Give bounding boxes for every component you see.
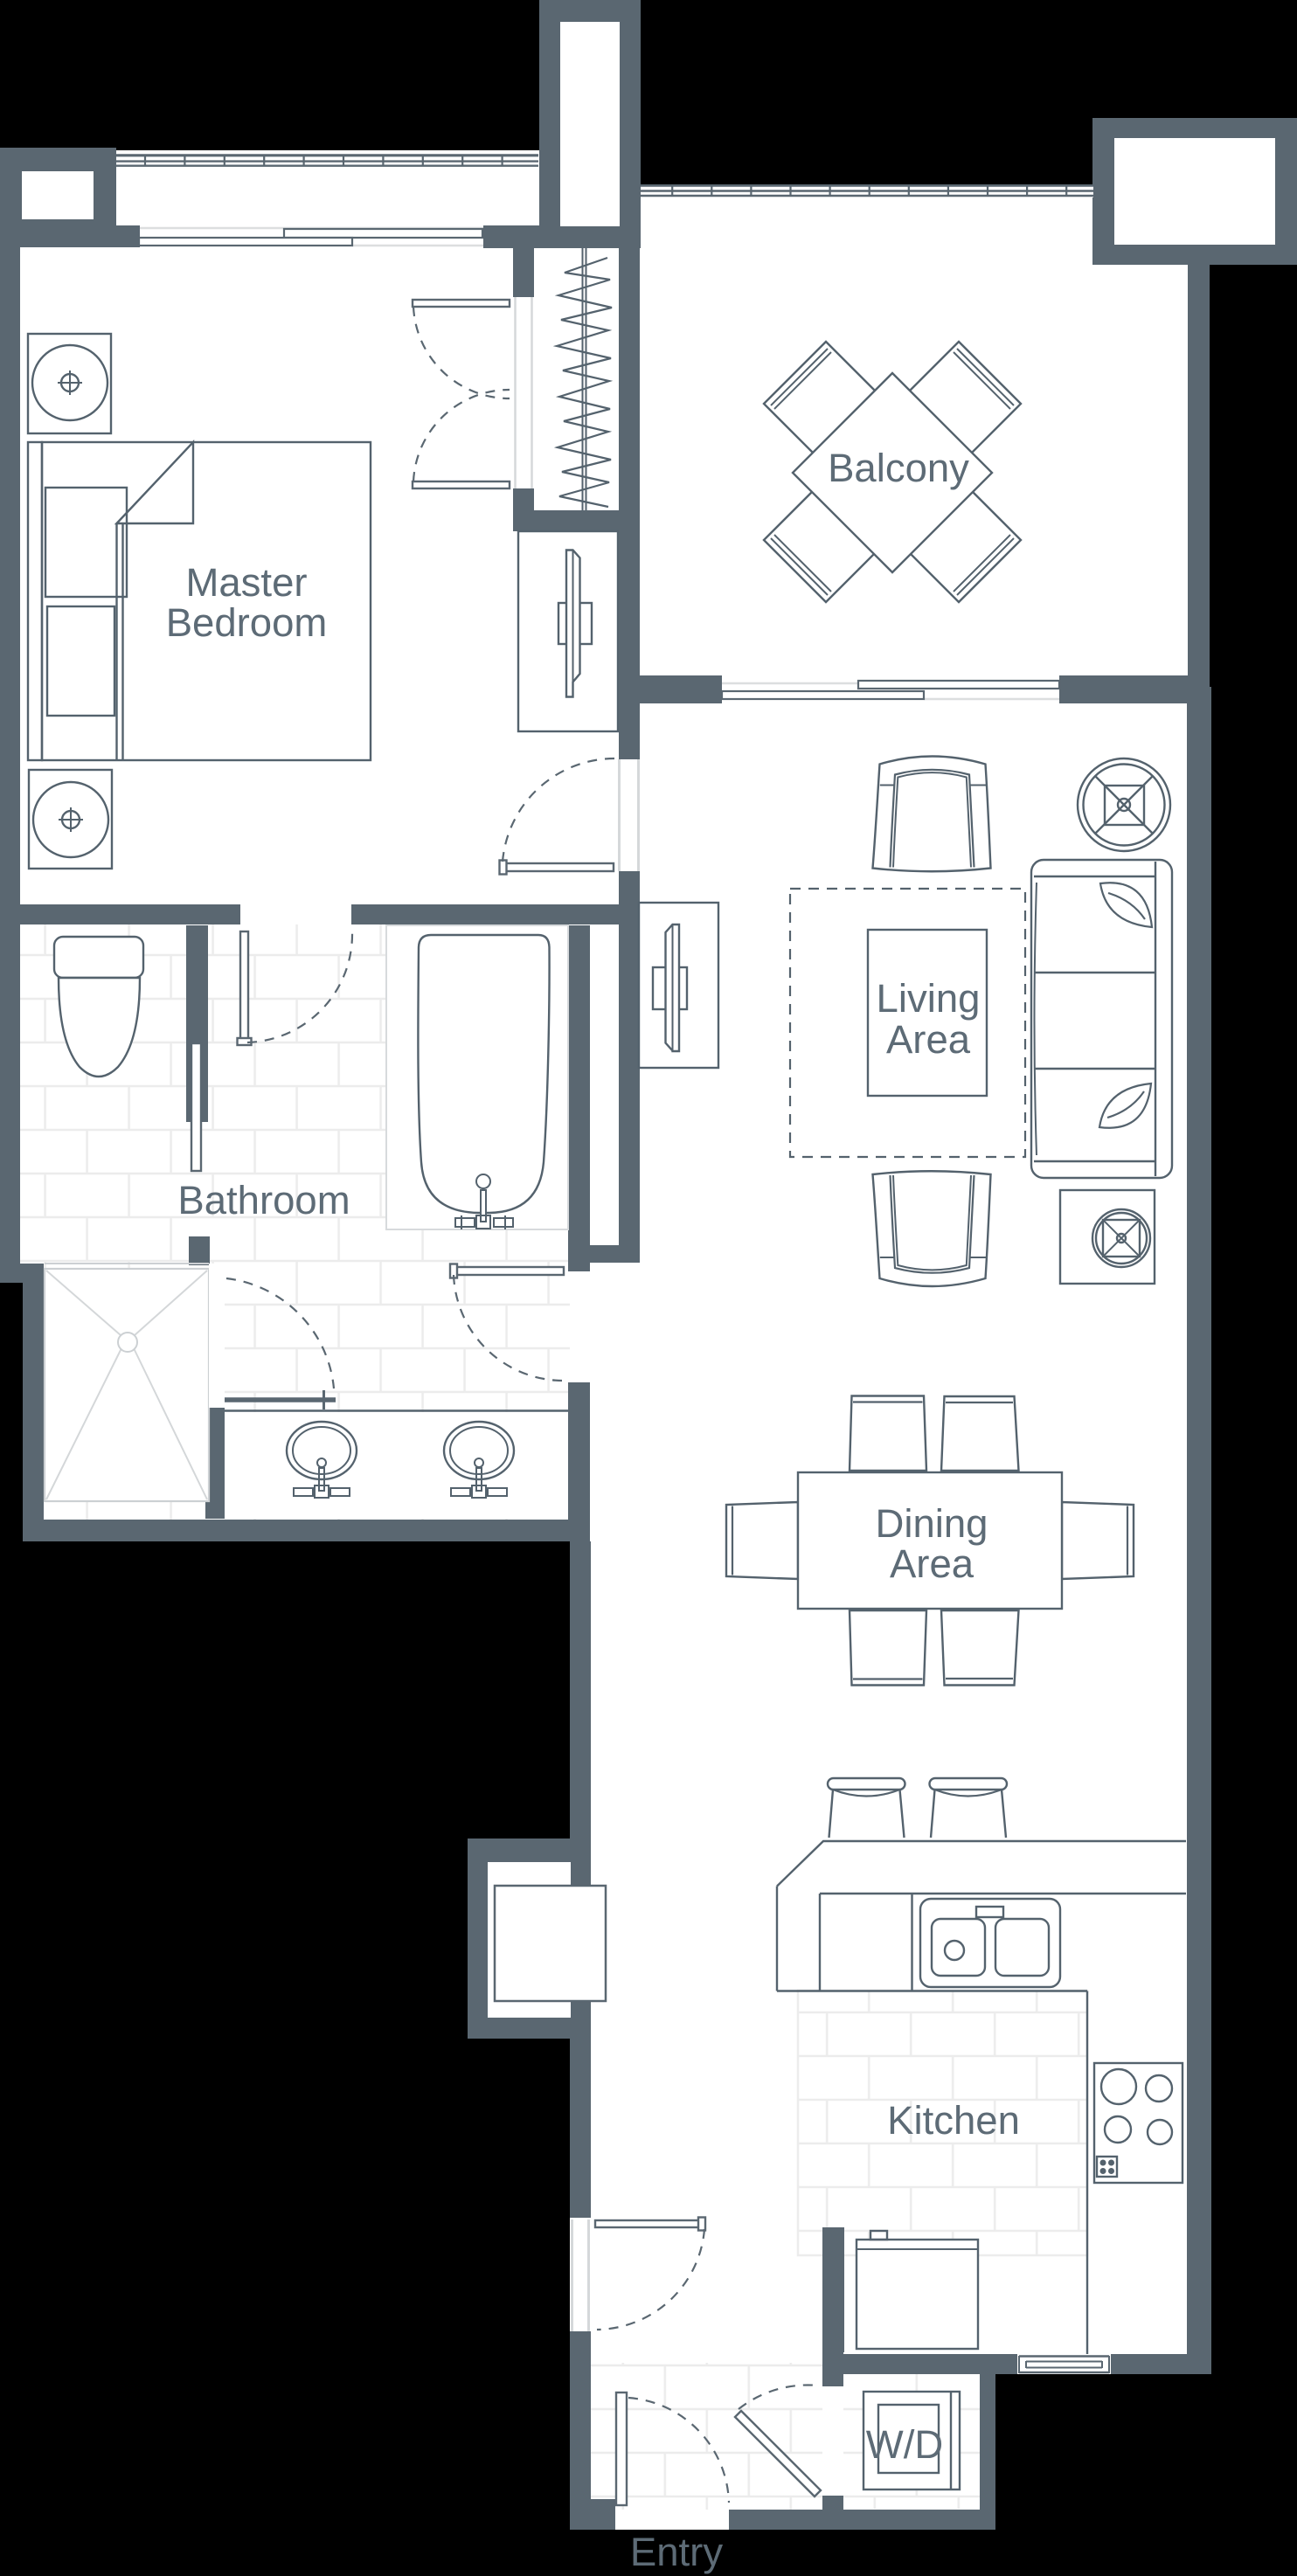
svg-text:Bathroom: Bathroom bbox=[177, 1178, 350, 1222]
svg-text:W/D: W/D bbox=[866, 2422, 943, 2467]
svg-text:Kitchen: Kitchen bbox=[887, 2098, 1020, 2143]
svg-text:Dining: Dining bbox=[876, 1501, 988, 1546]
svg-text:Balcony: Balcony bbox=[828, 446, 969, 490]
svg-text:Area: Area bbox=[886, 1017, 971, 1062]
svg-text:Area: Area bbox=[890, 1541, 974, 1586]
svg-text:Entry: Entry bbox=[630, 2530, 723, 2574]
svg-text:Bedroom: Bedroom bbox=[166, 600, 328, 645]
svg-text:Living: Living bbox=[877, 976, 981, 1021]
svg-text:Master: Master bbox=[185, 560, 307, 605]
